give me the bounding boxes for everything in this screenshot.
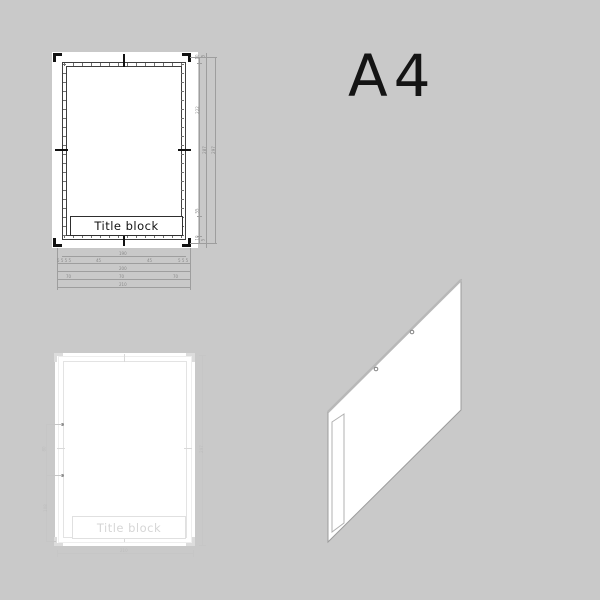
dimension-line <box>57 553 194 554</box>
dim-label: 70 <box>119 275 124 279</box>
dim-label: 222 <box>196 106 200 114</box>
dim-label: 210 <box>120 549 128 553</box>
dim-label: 45 <box>147 259 152 263</box>
centring-mark-top <box>124 354 125 362</box>
centring-mark-right <box>178 149 191 151</box>
dimension-tick <box>199 545 206 546</box>
dimension-line <box>46 424 47 542</box>
leader-line <box>46 541 56 542</box>
trim-mark-icon <box>53 53 62 62</box>
centring-mark-top <box>123 54 125 67</box>
dim-label: 55 <box>196 208 200 213</box>
dim-label: 5 5 5 5 <box>57 259 71 263</box>
drawing-canvas: Title block 10 222 55 10 5 287 5 297 190… <box>0 0 600 600</box>
format-label: A4 <box>348 42 437 110</box>
inner-frame-ghost <box>63 361 187 538</box>
leader-line <box>46 424 62 425</box>
title-block-label: Title block <box>94 219 158 233</box>
dim-label: 70 <box>173 275 178 279</box>
dim-label: 45 <box>96 259 101 263</box>
dim-label: 108 <box>44 504 48 512</box>
dim-label: 190 <box>119 252 127 256</box>
dim-label: 5 <box>201 55 205 58</box>
dimension-line <box>62 256 186 257</box>
centring-mark-left <box>57 448 65 449</box>
filing-hole-icon <box>374 367 378 371</box>
extension-line <box>190 243 217 244</box>
title-block: Title block <box>70 216 183 236</box>
oblique-sheet-view <box>310 265 475 555</box>
centring-mark-left <box>55 149 68 151</box>
dim-label: 210 <box>119 283 127 287</box>
dimension-line <box>57 279 191 280</box>
dim-label: 10 <box>196 235 200 240</box>
dimension-tick <box>199 355 206 356</box>
leader-line <box>46 475 62 476</box>
filing-hole-icon <box>410 330 414 334</box>
dim-label: 5 <box>201 239 205 242</box>
dimension-tick <box>193 550 194 557</box>
dimension-tick <box>57 550 58 557</box>
inner-frame <box>66 66 182 236</box>
dimension-line <box>57 263 191 264</box>
dim-label: 297 <box>212 146 216 154</box>
oblique-paper-face <box>328 280 461 542</box>
extension-line <box>190 248 191 290</box>
dim-label: 80 <box>43 446 47 451</box>
extension-line <box>57 248 58 290</box>
dim-label: 10 <box>196 54 200 59</box>
dim-label: 287 <box>203 146 207 154</box>
title-block-ghost: Title block <box>72 516 186 539</box>
dimension-line <box>57 287 191 288</box>
dim-label: 70 <box>66 275 71 279</box>
dimension-line <box>57 271 191 272</box>
dim-label: 200 <box>119 267 127 271</box>
title-block-label: Title block <box>97 521 161 535</box>
dim-label: 5 5 5 <box>178 259 188 263</box>
oblique-title-block <box>332 414 344 532</box>
trim-mark-icon <box>53 238 62 247</box>
dim-label: 297 <box>200 445 204 453</box>
dimension-tick <box>197 216 202 217</box>
dimension-tick <box>197 63 202 64</box>
centring-mark-right <box>184 448 192 449</box>
